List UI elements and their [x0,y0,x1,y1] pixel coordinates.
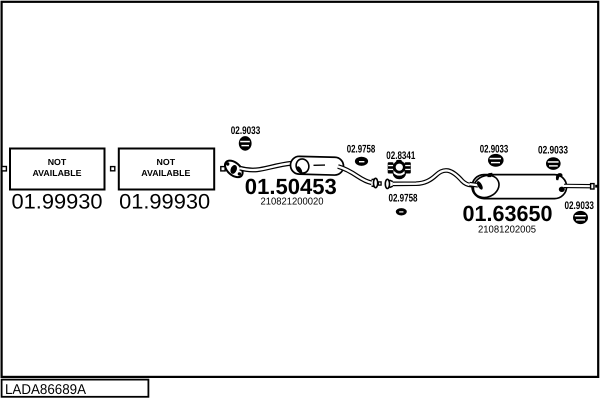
svg-text:AVAILABLE: AVAILABLE [141,168,190,178]
svg-text:02.9758: 02.9758 [389,193,418,205]
svg-text:AVAILABLE: AVAILABLE [32,168,81,178]
svg-text:NOT: NOT [48,157,67,167]
svg-text:NOT: NOT [157,157,176,167]
svg-text:02.9033: 02.9033 [480,143,509,155]
svg-text:02.9033: 02.9033 [231,125,261,137]
svg-text:210821200020: 210821200020 [261,197,324,208]
svg-text:01.50453: 01.50453 [245,174,337,199]
svg-text:02.9033: 02.9033 [564,200,594,212]
svg-text:02.9758: 02.9758 [347,144,376,156]
svg-text:01.99930: 01.99930 [12,191,103,214]
svg-text:21081202005: 21081202005 [478,225,536,236]
svg-text:02.9033: 02.9033 [538,144,568,156]
svg-text:01.63650: 01.63650 [463,201,553,226]
svg-text:01.99930: 01.99930 [119,191,210,214]
svg-text:LADA86689A: LADA86689A [5,382,86,398]
